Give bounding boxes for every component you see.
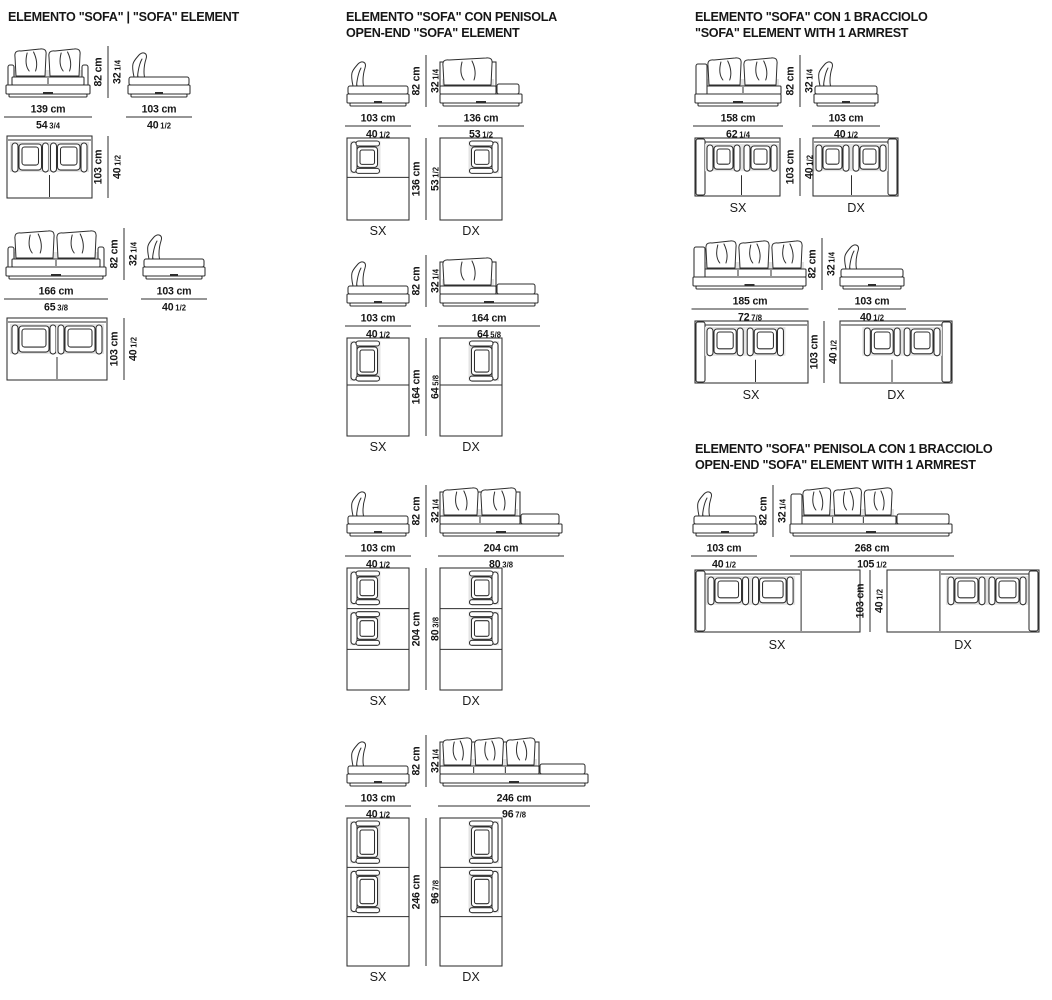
dim-inches-label: 645/8 <box>477 330 501 341</box>
dim-inches-label: 727/8 <box>738 313 762 324</box>
dim-inches-label: 401/2 <box>829 340 840 364</box>
inches-fraction: 1/2 <box>379 811 390 820</box>
inches-whole: 32 <box>430 762 442 773</box>
dim-inches-label: 321/4 <box>431 499 442 523</box>
sofa-spec-sheet: 82 cm321/4139 cm543/4103 cm401/2103 cm40… <box>0 0 1052 1000</box>
section-title-sofa-1-armrest: ELEMENTO "SOFA" CON 1 BRACCIOLO "SOFA" E… <box>695 9 928 40</box>
inches-whole: 80 <box>430 630 442 641</box>
inches-fraction: 1/2 <box>114 155 123 166</box>
dim-cm-label: 82 cm <box>412 67 423 96</box>
dim-cm-label: 103 cm <box>855 297 890 308</box>
inches-fraction: 1/4 <box>114 60 123 71</box>
dim-inches-label: 321/4 <box>827 252 838 276</box>
title-line: ELEMENTO "SOFA" | "SOFA" ELEMENT <box>8 9 239 25</box>
dim-cm-label: 82 cm <box>759 497 770 526</box>
title-line: ELEMENTO "SOFA" CON PENISOLA <box>346 9 557 25</box>
dim-cm-label: 103 cm <box>110 332 121 367</box>
inches-fraction: 1/4 <box>779 499 788 510</box>
dim-cm-label: 103 cm <box>361 314 396 325</box>
inches-fraction: 3/4 <box>49 122 60 131</box>
inches-fraction: 1/2 <box>379 561 390 570</box>
dim-inches-label: 401/2 <box>113 155 124 179</box>
dim-inches-label: 531/2 <box>469 130 493 141</box>
inches-whole: 32 <box>430 82 442 93</box>
inches-whole: 32 <box>128 255 140 266</box>
dim-inches-label: 401/2 <box>805 155 816 179</box>
orientation-label: SX <box>370 970 387 984</box>
orientation-label: SX <box>370 440 387 454</box>
inches-whole: 40 <box>712 559 723 571</box>
inches-fraction: 1/4 <box>432 749 441 760</box>
inches-fraction: 1/2 <box>725 561 736 570</box>
dim-inches-label: 321/4 <box>431 749 442 773</box>
dim-cm-label: 103 cm <box>786 150 797 185</box>
dim-cm-label: 103 cm <box>157 287 192 298</box>
dim-inches-label: 401/2 <box>366 560 390 571</box>
dim-cm-label: 103 cm <box>707 544 742 555</box>
section-title-sofa-open-end: ELEMENTO "SOFA" CON PENISOLA OPEN-END "S… <box>346 9 557 40</box>
inches-whole: 40 <box>366 559 377 571</box>
inches-fraction: 1/2 <box>830 340 839 351</box>
inches-whole: 105 <box>857 559 874 571</box>
dim-inches-label: 803/8 <box>489 560 513 571</box>
inches-whole: 65 <box>44 302 55 314</box>
inches-fraction: 1/2 <box>160 122 171 131</box>
orientation-label: DX <box>847 201 865 215</box>
dim-inches-label: 401/2 <box>366 810 390 821</box>
dim-inches-label: 653/8 <box>44 303 68 314</box>
inches-whole: 72 <box>738 312 749 324</box>
orientation-label: SX <box>370 224 387 238</box>
inches-whole: 53 <box>469 129 480 141</box>
inches-fraction: 3/8 <box>57 304 68 313</box>
dim-inches-label: 401/2 <box>162 303 186 314</box>
title-line: OPEN-END "SOFA" ELEMENT WITH 1 ARMREST <box>695 457 992 473</box>
dim-cm-label: 82 cm <box>412 267 423 296</box>
dim-inches-label: 401/2 <box>860 313 884 324</box>
dim-inches-label: 401/2 <box>875 589 886 613</box>
dim-cm-label: 103 cm <box>361 114 396 125</box>
inches-whole: 40 <box>366 329 377 341</box>
dim-cm-label: 103 cm <box>361 794 396 805</box>
orientation-label: DX <box>462 440 480 454</box>
dim-inches-label: 321/4 <box>431 69 442 93</box>
inches-fraction: 1/4 <box>739 131 750 140</box>
inches-fraction: 7/8 <box>515 811 526 820</box>
dim-inches-label: 321/4 <box>129 242 140 266</box>
dim-cm-label: 103 cm <box>810 335 821 370</box>
orientation-label: SX <box>730 201 747 215</box>
inches-fraction: 1/2 <box>130 337 139 348</box>
orientation-label: DX <box>462 694 480 708</box>
dim-inches-label: 621/4 <box>726 130 750 141</box>
dim-cm-label: 82 cm <box>110 240 121 269</box>
title-line: ELEMENTO "SOFA" PENISOLA CON 1 BRACCIOLO <box>695 441 992 457</box>
inches-fraction: 1/4 <box>432 269 441 280</box>
dim-cm-label: 268 cm <box>855 544 890 555</box>
inches-whole: 40 <box>804 168 816 179</box>
dim-inches-label: 401/2 <box>366 330 390 341</box>
inches-whole: 54 <box>36 120 47 132</box>
inches-fraction: 7/8 <box>432 880 441 891</box>
dim-inches-label: 531/2 <box>431 167 442 191</box>
dim-cm-label: 82 cm <box>786 67 797 96</box>
inches-fraction: 1/4 <box>828 252 837 263</box>
orientation-label: DX <box>954 638 972 652</box>
dim-cm-label: 82 cm <box>412 747 423 776</box>
inches-fraction: 5/8 <box>490 331 501 340</box>
inches-fraction: 1/2 <box>175 304 186 313</box>
inches-whole: 32 <box>430 512 442 523</box>
dim-cm-label: 103 cm <box>361 544 396 555</box>
dim-cm-label: 103 cm <box>829 114 864 125</box>
title-line: "SOFA" ELEMENT WITH 1 ARMREST <box>695 25 928 41</box>
inches-whole: 80 <box>489 559 500 571</box>
dim-cm-label: 166 cm <box>39 287 74 298</box>
title-line: ELEMENTO "SOFA" CON 1 BRACCIOLO <box>695 9 928 25</box>
inches-whole: 40 <box>147 120 158 132</box>
dim-inches-label: 401/2 <box>366 130 390 141</box>
dim-cm-label: 103 cm <box>94 150 105 185</box>
inches-whole: 62 <box>726 129 737 141</box>
dim-cm-label: 246 cm <box>497 794 532 805</box>
section-title-sofa-element: ELEMENTO "SOFA" | "SOFA" ELEMENT <box>8 9 239 25</box>
dim-inches-label: 321/4 <box>113 60 124 84</box>
dim-cm-label: 82 cm <box>808 250 819 279</box>
inches-whole: 40 <box>112 168 124 179</box>
inches-fraction: 1/2 <box>482 131 493 140</box>
dimension-labels-layer: 82 cm321/4139 cm543/4103 cm401/2103 cm40… <box>0 0 1052 1000</box>
inches-whole: 40 <box>860 312 871 324</box>
inches-whole: 64 <box>477 329 488 341</box>
dim-inches-label: 543/4 <box>36 121 60 132</box>
inches-fraction: 1/2 <box>379 331 390 340</box>
inches-fraction: 1/2 <box>806 155 815 166</box>
dim-cm-label: 103 cm <box>142 105 177 116</box>
inches-whole: 64 <box>430 388 442 399</box>
dim-inches-label: 967/8 <box>502 810 526 821</box>
inches-whole: 40 <box>834 129 845 141</box>
dim-cm-label: 204 cm <box>412 612 423 647</box>
orientation-label: SX <box>370 694 387 708</box>
inches-fraction: 1/2 <box>379 131 390 140</box>
dim-inches-label: 401/2 <box>147 121 171 132</box>
dim-cm-label: 103 cm <box>856 584 867 619</box>
inches-fraction: 1/2 <box>876 561 887 570</box>
dim-cm-label: 82 cm <box>94 58 105 87</box>
dim-inches-label: 803/8 <box>431 617 442 641</box>
inches-fraction: 7/8 <box>751 314 762 323</box>
dim-inches-label: 321/4 <box>805 69 816 93</box>
inches-whole: 40 <box>128 350 140 361</box>
dim-inches-label: 967/8 <box>431 880 442 904</box>
dim-inches-label: 321/4 <box>431 269 442 293</box>
inches-whole: 40 <box>366 809 377 821</box>
inches-whole: 96 <box>502 809 513 821</box>
dim-cm-label: 136 cm <box>464 114 499 125</box>
dim-inches-label: 645/8 <box>431 375 442 399</box>
dim-cm-label: 246 cm <box>412 875 423 910</box>
inches-fraction: 1/4 <box>432 69 441 80</box>
orientation-label: DX <box>887 388 905 402</box>
dim-inches-label: 401/2 <box>834 130 858 141</box>
dim-cm-label: 185 cm <box>733 297 768 308</box>
dim-cm-label: 139 cm <box>31 105 66 116</box>
title-line: OPEN-END "SOFA" ELEMENT <box>346 25 557 41</box>
inches-fraction: 3/8 <box>432 617 441 628</box>
inches-fraction: 1/4 <box>432 499 441 510</box>
dim-cm-label: 204 cm <box>484 544 519 555</box>
inches-fraction: 1/2 <box>876 589 885 600</box>
inches-fraction: 1/2 <box>847 131 858 140</box>
dim-cm-label: 158 cm <box>721 114 756 125</box>
orientation-label: SX <box>769 638 786 652</box>
inches-whole: 32 <box>430 282 442 293</box>
inches-whole: 40 <box>874 602 886 613</box>
inches-fraction: 1/2 <box>432 167 441 178</box>
inches-fraction: 1/2 <box>873 314 884 323</box>
inches-whole: 32 <box>804 82 816 93</box>
inches-whole: 96 <box>430 893 442 904</box>
dim-cm-label: 136 cm <box>412 162 423 197</box>
inches-whole: 40 <box>366 129 377 141</box>
dim-cm-label: 164 cm <box>472 314 507 325</box>
inches-fraction: 3/8 <box>502 561 513 570</box>
inches-whole: 32 <box>777 512 789 523</box>
inches-whole: 40 <box>162 302 173 314</box>
orientation-label: SX <box>743 388 760 402</box>
dim-inches-label: 321/4 <box>778 499 789 523</box>
inches-whole: 32 <box>112 73 124 84</box>
inches-whole: 53 <box>430 180 442 191</box>
inches-fraction: 1/4 <box>806 69 815 80</box>
inches-whole: 32 <box>826 265 838 276</box>
orientation-label: DX <box>462 970 480 984</box>
dim-cm-label: 82 cm <box>412 497 423 526</box>
dim-inches-label: 401/2 <box>129 337 140 361</box>
dim-cm-label: 164 cm <box>412 370 423 405</box>
inches-fraction: 5/8 <box>432 375 441 386</box>
dim-inches-label: 401/2 <box>712 560 736 571</box>
inches-fraction: 1/4 <box>130 242 139 253</box>
dim-inches-label: 1051/2 <box>857 560 887 571</box>
inches-whole: 40 <box>828 353 840 364</box>
orientation-label: DX <box>462 224 480 238</box>
section-title-sofa-open-end-1-armrest: ELEMENTO "SOFA" PENISOLA CON 1 BRACCIOLO… <box>695 441 992 472</box>
